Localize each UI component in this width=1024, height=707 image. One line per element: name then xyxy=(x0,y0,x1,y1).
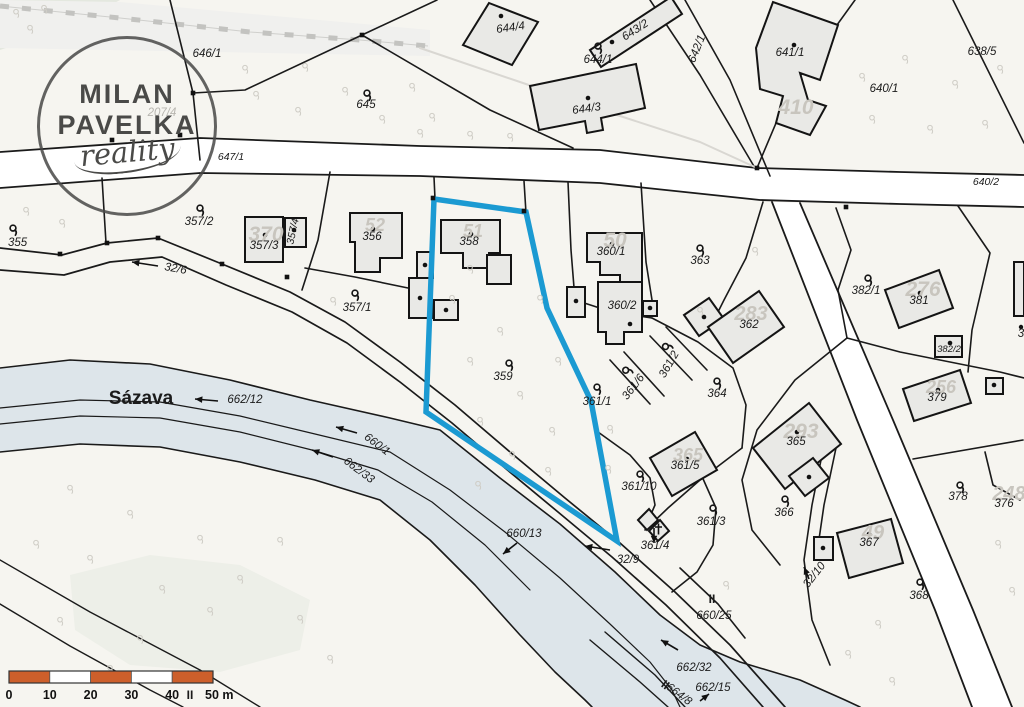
scale-bar-segment xyxy=(9,671,50,683)
boundary-node xyxy=(191,91,196,96)
parcel-label: 644/1 xyxy=(584,54,613,66)
parcel-label: 662/32 xyxy=(676,662,712,674)
parcel-label: 362 xyxy=(739,319,759,331)
parcel-label: 364 xyxy=(707,388,726,400)
parcel-label: 645 xyxy=(356,99,376,111)
parcel-label: 662/12 xyxy=(227,394,263,406)
parcel-label: 358 xyxy=(459,236,479,248)
scale-bar-segment xyxy=(91,671,132,683)
parcel-label: 207/4 xyxy=(147,107,177,119)
parcel-label: 379 xyxy=(927,392,947,404)
parcel-label: 359 xyxy=(493,371,513,383)
boundary-node xyxy=(522,209,527,214)
parcel-label: 361/3 xyxy=(697,516,726,528)
parcel-label: 361/4 xyxy=(641,540,670,552)
parcel-label: 641/1 xyxy=(776,47,805,59)
parcel-label: 365 xyxy=(786,436,806,448)
parcel-label: 647/1 xyxy=(218,151,244,163)
parcel-label: 381 xyxy=(909,295,928,307)
building-dot xyxy=(499,14,504,19)
building-dot xyxy=(586,96,591,101)
boundary-node xyxy=(156,236,161,241)
parcel-label: 640/1 xyxy=(870,83,899,95)
parcel-label: 360/2 xyxy=(608,300,637,312)
house-number-gray: 410 xyxy=(777,96,813,119)
boundary-node xyxy=(285,275,290,280)
boundary-node xyxy=(58,252,63,257)
parcel-label: Sázava xyxy=(109,388,174,409)
boundary-node xyxy=(844,205,849,210)
boundary-node xyxy=(220,262,225,267)
building-dot xyxy=(574,299,579,304)
boundary-node xyxy=(105,241,110,246)
scale-bar-segment xyxy=(131,671,172,683)
parcel-label: 367 xyxy=(859,537,879,549)
building-dot xyxy=(444,308,449,313)
building-dot xyxy=(807,475,812,480)
parcel-label: 356 xyxy=(362,231,382,243)
building-dot xyxy=(648,306,653,311)
parcel-label: 646/1 xyxy=(193,48,222,60)
scale-bar-segment xyxy=(172,671,213,683)
cadastral-map: 37052515041028327625624829336549646/1644… xyxy=(0,0,1024,707)
parcel-label: 638/5 xyxy=(968,46,997,58)
building-dot xyxy=(992,383,997,388)
boundary-node xyxy=(431,196,436,201)
parcel-label: 382/1 xyxy=(852,285,881,297)
boundary-node xyxy=(110,138,115,143)
parcel-label: 662/15 xyxy=(695,682,731,694)
building-dot xyxy=(628,322,633,327)
scale-tick-label: 10 xyxy=(43,688,57,702)
parcel-label: 357/1 xyxy=(343,302,372,314)
building-dot xyxy=(423,263,428,268)
building-dot xyxy=(610,40,615,45)
parcel-label: II xyxy=(709,592,716,606)
boundary-node xyxy=(178,133,183,138)
parcel-label: 382/2 xyxy=(937,344,961,355)
building-dot xyxy=(418,296,423,301)
parcel-label: 660/25 xyxy=(696,610,732,622)
parcel-label: 3 xyxy=(1018,328,1024,340)
parcel-label: 361/1 xyxy=(583,396,612,408)
parcel-label: 360/1 xyxy=(597,246,626,258)
parcel-label: 357/2 xyxy=(185,216,214,228)
boundary-node xyxy=(360,33,365,38)
parcel-label: 640/2 xyxy=(973,176,999,188)
building-footprint xyxy=(1014,262,1024,316)
scale-bar-segment xyxy=(50,671,91,683)
parcel-label: 355 xyxy=(8,237,28,249)
parcel-label: II xyxy=(187,688,194,702)
boundary-node xyxy=(755,166,760,171)
scale-tick-label: 40 xyxy=(165,688,179,702)
parcel-label: 361/5 xyxy=(671,460,700,472)
scale-tick-label: 30 xyxy=(124,688,138,702)
scale-tick-label: 0 xyxy=(6,688,13,702)
parcel-label: 660/13 xyxy=(506,528,542,540)
building-footprint xyxy=(487,255,511,284)
scale-tick-label: 20 xyxy=(84,688,98,702)
parcel-label: 368 xyxy=(909,590,929,602)
parcel-label: 361/10 xyxy=(621,481,657,493)
parcel-label: 366 xyxy=(774,507,794,519)
parcel-label: 363 xyxy=(690,255,710,267)
map-canvas: 37052515041028327625624829336549646/1644… xyxy=(0,0,1024,707)
building-dot xyxy=(821,546,826,551)
parcel-label: 378 xyxy=(948,491,968,503)
parcel-label: 376 xyxy=(994,498,1014,510)
parcel-label: 357/3 xyxy=(250,240,279,252)
parcel-label: 32/9 xyxy=(617,554,640,566)
scale-end-label: 50 m xyxy=(205,688,234,702)
